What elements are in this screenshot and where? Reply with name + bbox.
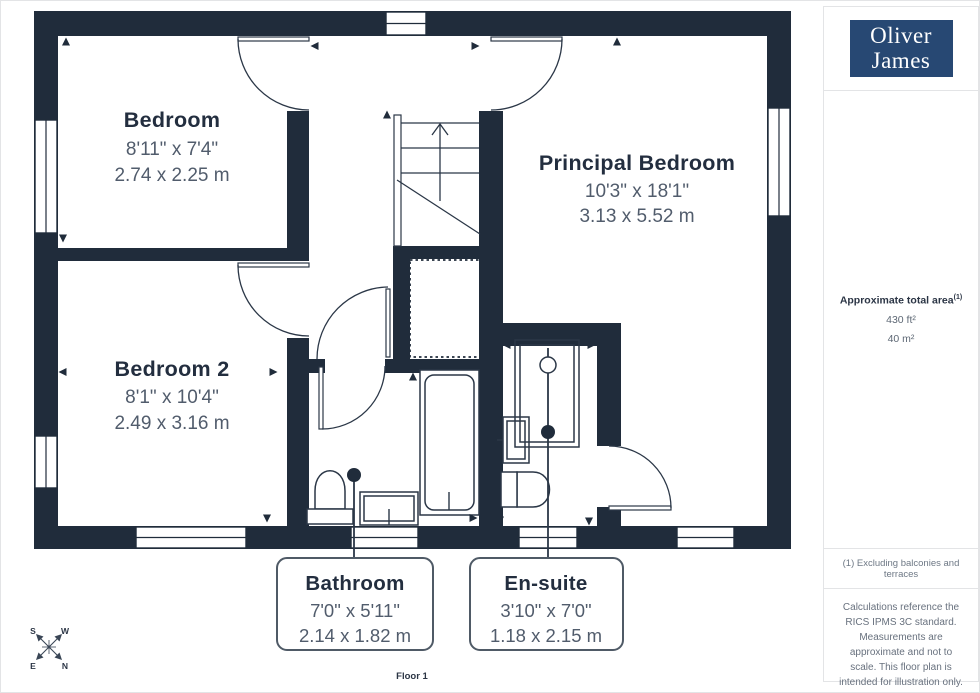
svg-text:3'10" x 7'0": 3'10" x 7'0" bbox=[500, 600, 591, 621]
sidebar: Oliver James Approximate total area(1) 4… bbox=[823, 1, 980, 693]
floorplan-page: Bedroom 8'11" x 7'4" 2.74 x 2.25 m Princ… bbox=[0, 0, 980, 693]
svg-text:7'0" x 5'11": 7'0" x 5'11" bbox=[310, 600, 400, 621]
room-label-bedroom2: Bedroom 2 8'1" x 10'4" 2.49 x 3.16 m bbox=[114, 357, 229, 434]
floor-plan: Bedroom 8'11" x 7'4" 2.74 x 2.25 m Princ… bbox=[1, 1, 825, 693]
window-bedroom2-left bbox=[35, 436, 57, 488]
window-principal-right bbox=[768, 108, 790, 216]
door-ensuite bbox=[609, 446, 671, 510]
walls bbox=[34, 11, 791, 549]
room-label-bedroom: Bedroom 8'11" x 7'4" 2.74 x 2.25 m bbox=[114, 108, 229, 186]
bathtub-icon bbox=[420, 370, 479, 515]
svg-text:10'3" x 18'1": 10'3" x 18'1" bbox=[585, 181, 689, 202]
sink-icon bbox=[360, 492, 418, 525]
bathroom-fixtures bbox=[307, 370, 479, 525]
disclaimer-cell: Calculations reference the RICS IPMS 3C … bbox=[823, 589, 979, 682]
bathroom-callout: Bathroom 7'0" x 5'11" 2.14 x 1.82 m bbox=[277, 558, 433, 650]
svg-text:Bathroom: Bathroom bbox=[305, 572, 404, 595]
area-feet: 430 ft² bbox=[886, 314, 916, 326]
windows bbox=[35, 12, 790, 548]
door-bedroom bbox=[238, 37, 309, 110]
stairs bbox=[394, 115, 480, 246]
disclaimer-text: Calculations reference the RICS IPMS 3C … bbox=[836, 600, 966, 690]
ensuite-callout: En-suite 3'10" x 7'0" 1.18 x 2.15 m bbox=[470, 558, 623, 650]
svg-text:8'11" x 7'4": 8'11" x 7'4" bbox=[126, 139, 218, 160]
stairs-up-arrow-icon bbox=[432, 124, 448, 201]
svg-text:S: S bbox=[30, 626, 36, 636]
compass-icon: S W E N bbox=[30, 626, 70, 671]
svg-text:W: W bbox=[61, 626, 70, 636]
door-principal bbox=[491, 37, 562, 110]
door-bathroom bbox=[319, 366, 385, 429]
svg-text:En-suite: En-suite bbox=[504, 572, 587, 595]
svg-text:1.18 x 2.15 m: 1.18 x 2.15 m bbox=[490, 625, 602, 646]
svg-text:8'1" x 10'4": 8'1" x 10'4" bbox=[125, 387, 219, 408]
svg-text:2.74 x 2.25 m: 2.74 x 2.25 m bbox=[114, 165, 229, 186]
svg-text:2.14 x 1.82 m: 2.14 x 1.82 m bbox=[299, 625, 411, 646]
cupboard-dashed-outline bbox=[410, 260, 480, 357]
total-area-cell: Approximate total area(1) 430 ft² 40 m² bbox=[823, 91, 979, 549]
logo-cell: Oliver James bbox=[823, 6, 979, 91]
svg-text:N: N bbox=[62, 661, 68, 671]
area-title-footnote-marker: (1) bbox=[954, 294, 963, 301]
svg-text:Bedroom: Bedroom bbox=[124, 108, 220, 132]
svg-text:3.13 x 5.52 m: 3.13 x 5.52 m bbox=[579, 206, 694, 227]
window-bedroom-left bbox=[35, 120, 57, 233]
room-label-principal-bedroom: Principal Bedroom 10'3" x 18'1" 3.13 x 5… bbox=[539, 151, 735, 227]
door-hallway bbox=[317, 287, 390, 359]
logo-line1: Oliver bbox=[870, 24, 932, 48]
door-bedroom2 bbox=[238, 263, 309, 336]
svg-text:Bedroom 2: Bedroom 2 bbox=[115, 357, 230, 381]
footnote-cell: (1) Excluding balconies and terraces bbox=[823, 549, 979, 589]
shower-icon bbox=[515, 340, 579, 447]
logo-line2: James bbox=[872, 49, 931, 73]
svg-text:Principal Bedroom: Principal Bedroom bbox=[539, 151, 735, 175]
ensuite-toilet-icon bbox=[501, 472, 550, 507]
footnote-text: (1) Excluding balconies and terraces bbox=[832, 558, 970, 580]
toilet-icon bbox=[307, 471, 353, 524]
floor-label: Floor 1 bbox=[396, 671, 428, 682]
window-bedroom2-bottom bbox=[136, 527, 246, 548]
oliver-james-logo: Oliver James bbox=[850, 20, 953, 77]
area-title: Approximate total area(1) bbox=[840, 294, 962, 307]
svg-text:2.49 x 3.16 m: 2.49 x 3.16 m bbox=[114, 413, 229, 434]
window-principal-bottom bbox=[677, 527, 734, 548]
area-meters: 40 m² bbox=[888, 333, 915, 345]
window-bathroom-bottom bbox=[351, 527, 418, 548]
svg-text:E: E bbox=[30, 661, 36, 671]
window-top bbox=[386, 12, 426, 35]
